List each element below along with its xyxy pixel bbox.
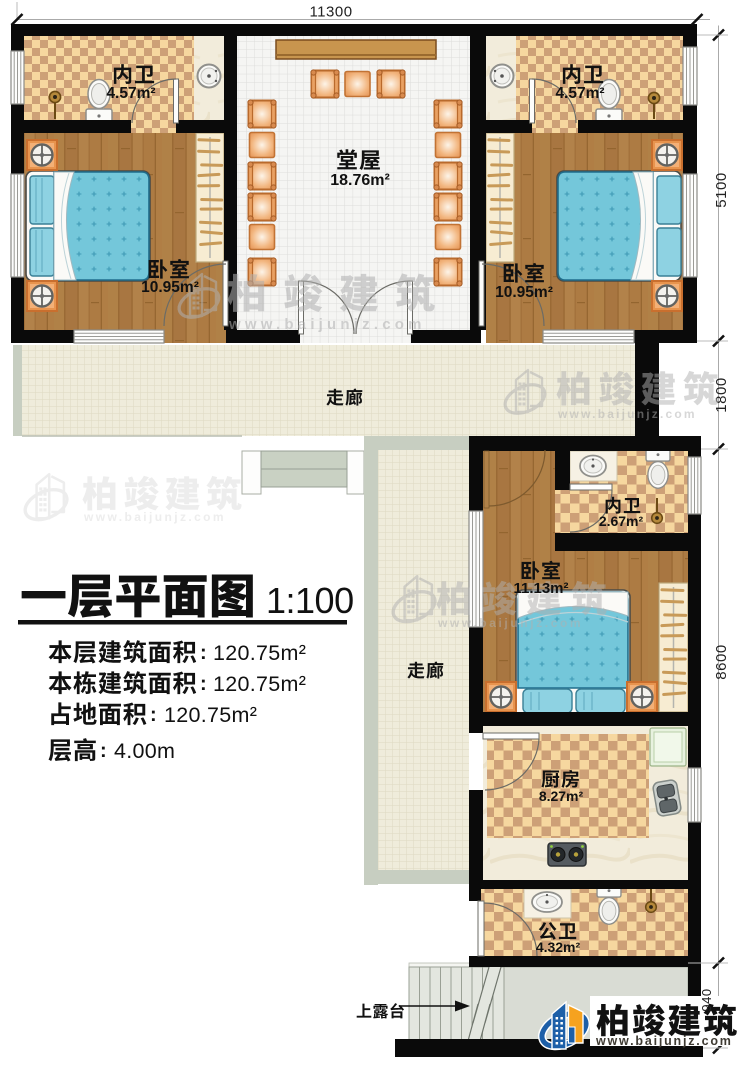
svg-text:8.27m²: 8.27m² bbox=[539, 788, 584, 804]
svg-text:4.00m: 4.00m bbox=[114, 739, 175, 763]
svg-text:8600: 8600 bbox=[713, 644, 730, 679]
svg-text:2.67m²: 2.67m² bbox=[599, 513, 644, 529]
svg-text:www.baijunjz.com: www.baijunjz.com bbox=[83, 510, 226, 524]
svg-text::: : bbox=[100, 740, 107, 762]
svg-text::: : bbox=[150, 704, 157, 726]
svg-text:10.95m²: 10.95m² bbox=[141, 279, 199, 296]
svg-text:www.baijunjz.com: www.baijunjz.com bbox=[228, 316, 426, 333]
svg-text:18.76m²: 18.76m² bbox=[330, 172, 390, 189]
svg-text:www.baijunjz.com: www.baijunjz.com bbox=[437, 616, 583, 630]
svg-text:4.57m²: 4.57m² bbox=[555, 85, 604, 102]
svg-text:5100: 5100 bbox=[713, 172, 730, 207]
svg-text:120.75m²: 120.75m² bbox=[213, 641, 306, 665]
svg-text:1800: 1800 bbox=[713, 377, 730, 412]
svg-text:4.57m²: 4.57m² bbox=[106, 85, 155, 102]
svg-text::: : bbox=[200, 673, 207, 695]
svg-text:10.95m²: 10.95m² bbox=[495, 284, 553, 301]
svg-text:940: 940 bbox=[699, 988, 714, 1011]
svg-text:4.32m²: 4.32m² bbox=[536, 939, 581, 955]
svg-text:www.baijunjz.com: www.baijunjz.com bbox=[595, 1034, 733, 1048]
svg-text:www.baijunjz.com: www.baijunjz.com bbox=[557, 407, 697, 421]
svg-text:120.75m²: 120.75m² bbox=[213, 672, 306, 696]
svg-text:11.13m²: 11.13m² bbox=[513, 580, 568, 597]
svg-text:11300: 11300 bbox=[309, 4, 352, 21]
svg-text::: : bbox=[200, 642, 207, 664]
svg-text:1:100: 1:100 bbox=[266, 580, 354, 621]
svg-text:120.75m²: 120.75m² bbox=[164, 703, 257, 727]
